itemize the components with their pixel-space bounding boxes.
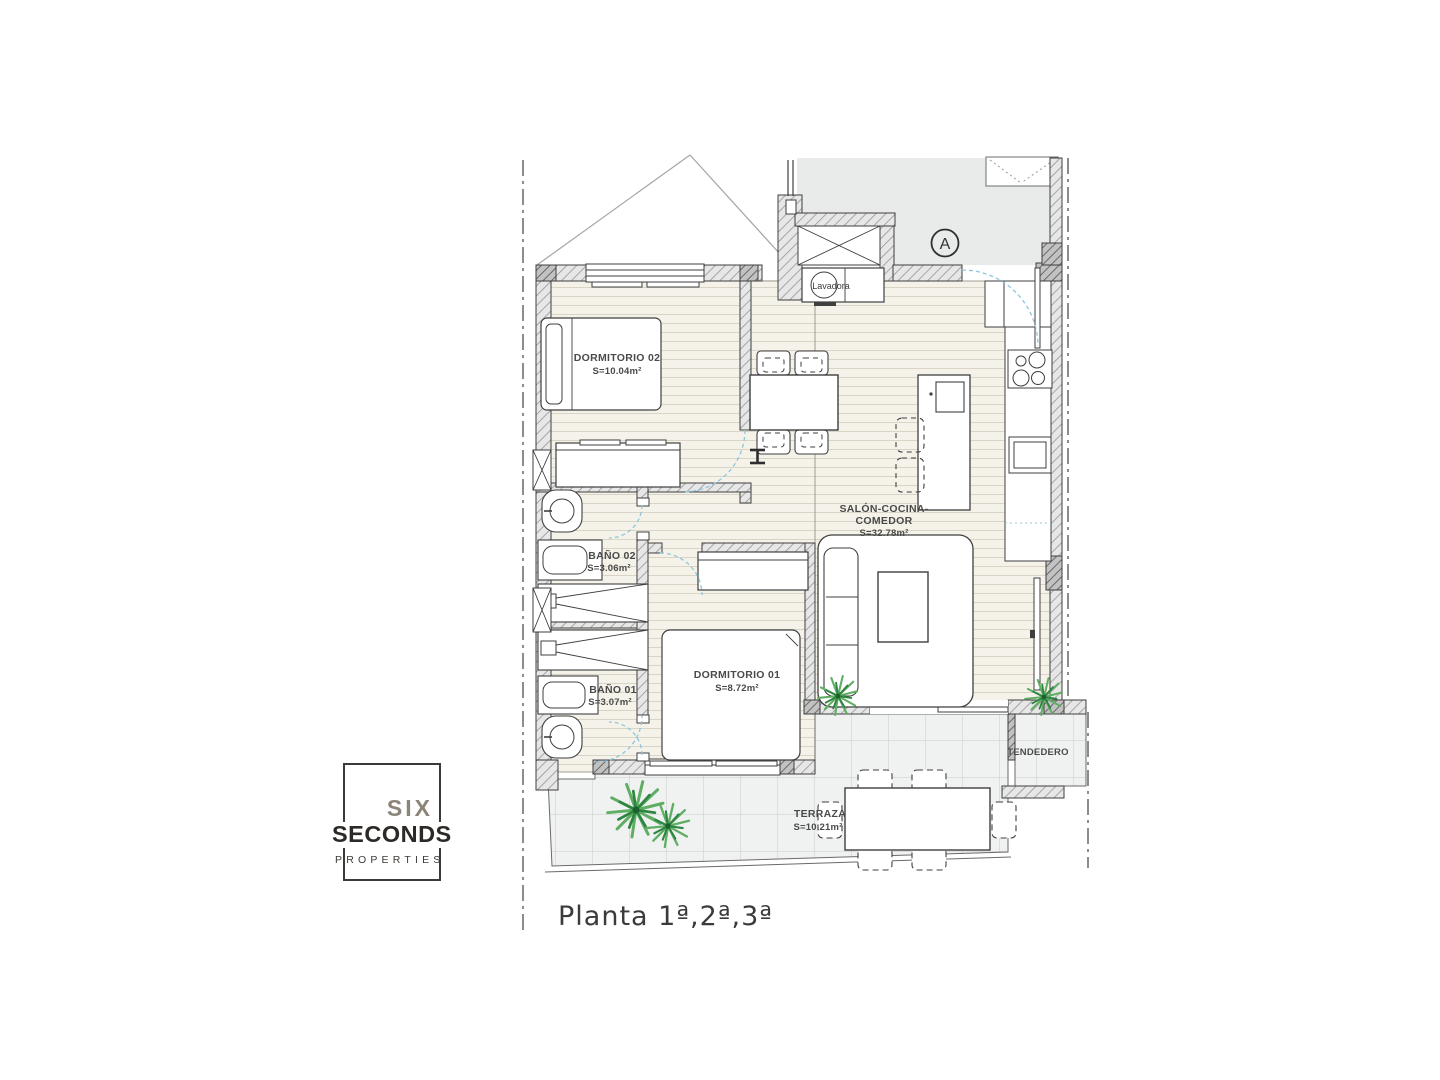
pillow [546, 324, 562, 404]
label-dormitorio02-area: S=10.04m² [592, 366, 641, 377]
shower-tray [538, 584, 648, 622]
hob-icon [1008, 350, 1052, 388]
chair [795, 351, 828, 375]
terrace-chair [912, 848, 946, 870]
label-bano02: BAÑO 02 [588, 549, 636, 562]
dormitorio02-furniture [541, 318, 680, 487]
label-salon-area: S=32.78m² [859, 528, 908, 539]
label-bano02-area: S=3.06m² [587, 563, 631, 574]
label-tendedero: TENDEDERO [1007, 747, 1068, 758]
logo-word-seconds: SECONDS [332, 822, 454, 848]
label-bano01: BAÑO 01 [589, 683, 637, 696]
label-dormitorio01-area: S=8.72m² [715, 683, 759, 694]
coffee-table [878, 572, 928, 642]
sofa [824, 548, 858, 696]
label-terraza-area: S=10.21m² [793, 822, 842, 833]
projection-lines [537, 155, 790, 265]
label-lavadora: Lavadora [812, 281, 850, 291]
washer-base [814, 302, 836, 306]
island-sink-icon [936, 382, 964, 412]
label-salon-line1: SALÓN-COCINA- [839, 502, 928, 515]
floorplan-page: A DORMITORIO 02 S=10.04m² SALÓN-COCINA- … [0, 0, 1440, 1080]
entry-door-leaf [1035, 268, 1040, 348]
chair [757, 351, 790, 375]
terrace-chair [858, 848, 892, 870]
downpipe [786, 200, 796, 214]
label-salon-line2: COMEDOR [856, 515, 913, 527]
section-marker-letter: A [940, 236, 951, 253]
kitchen-sink-icon [1009, 437, 1051, 473]
wardrobe [698, 552, 808, 590]
logo-word-six: SIX [387, 797, 433, 820]
label-dormitorio01: DORMITORIO 01 [694, 669, 781, 681]
label-bano01-area: S=3.07m² [588, 697, 632, 708]
terrace-table [845, 788, 990, 850]
terrace-chair [992, 802, 1016, 838]
tall-cabinet [985, 281, 1051, 327]
chair [795, 430, 828, 454]
plan-title: Planta 1ª,2ª,3ª [558, 901, 773, 932]
logo-word-properties: PROPERTIES [335, 855, 445, 866]
label-dormitorio02: DORMITORIO 02 [574, 352, 661, 364]
label-terraza: TERRAZA [794, 808, 846, 820]
logo-six-seconds: SIX SECONDS PROPERTIES [343, 763, 441, 881]
bed [662, 630, 800, 760]
shower-tray [538, 630, 648, 670]
dining-table [750, 375, 838, 430]
